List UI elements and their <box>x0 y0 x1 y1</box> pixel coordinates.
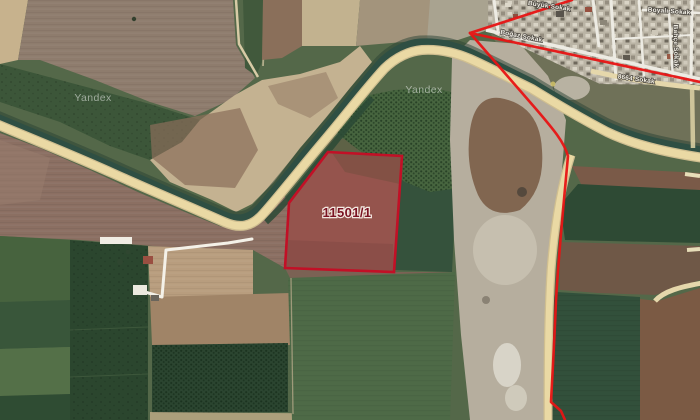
building <box>623 55 630 60</box>
quarry-gravel <box>493 343 521 387</box>
field-patch <box>0 347 70 396</box>
field-texture <box>288 272 455 420</box>
road-stub <box>685 174 700 176</box>
field-patch <box>0 300 70 349</box>
tree-icon <box>132 17 136 21</box>
quarry-spot <box>551 82 556 87</box>
building <box>585 7 592 12</box>
yandex-watermark: Yandex <box>74 92 112 104</box>
building <box>505 3 511 7</box>
field-patch <box>243 0 263 76</box>
edge-road <box>692 85 693 148</box>
farm-building <box>100 237 132 244</box>
parcel-label: 11501/1 <box>322 205 371 220</box>
quarry-pit <box>517 187 527 197</box>
quarry-gravel <box>473 215 537 285</box>
field-patch <box>0 394 70 420</box>
quarry-pit <box>482 296 490 304</box>
field-texture <box>549 292 640 420</box>
yandex-watermark: Yandex <box>405 84 443 96</box>
field-texture <box>152 343 288 413</box>
farm-building <box>133 285 147 295</box>
road-stub <box>687 249 700 250</box>
tree-icon <box>126 250 131 255</box>
street-label: Bahçe Sokak <box>672 25 680 68</box>
quarry-gravel <box>505 385 527 411</box>
satellite-map[interactable]: 11501/1 Büyük Sokak Boğaz Sokak 8664 Sok… <box>0 0 700 420</box>
building <box>600 20 607 25</box>
field-patch <box>150 293 290 345</box>
field-patch <box>0 236 70 302</box>
building <box>652 30 658 35</box>
field-patch <box>302 0 360 46</box>
farm-building <box>143 256 153 264</box>
farm-building <box>151 295 159 301</box>
field-patch <box>640 288 700 420</box>
field-patch <box>560 184 700 243</box>
tree-icon <box>117 259 123 265</box>
map-canvas[interactable]: 11501/1 Büyük Sokak Boğaz Sokak 8664 Sok… <box>0 0 700 420</box>
